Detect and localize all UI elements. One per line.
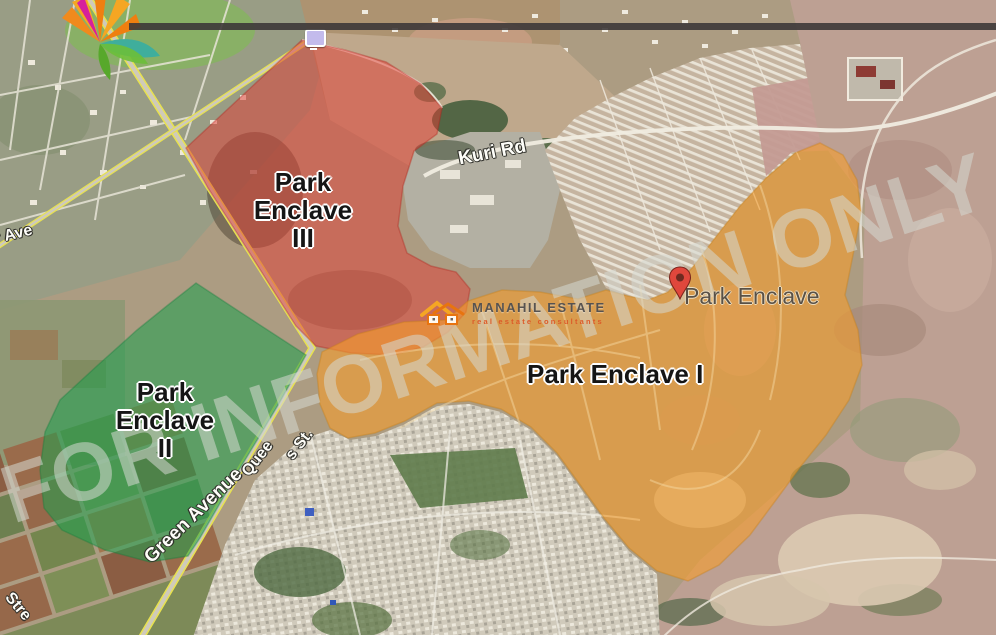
school-poi-icon[interactable]	[305, 29, 326, 47]
manahil-houses-icon	[420, 300, 466, 328]
flower-logo	[42, 0, 162, 91]
map-canvas[interactable]: FOR INFORMATION ONLY Park Enclave III Pa…	[0, 0, 996, 635]
region-label-line: III	[238, 224, 368, 252]
region-label-line: Enclave	[238, 196, 368, 224]
region-label-park-enclave-1: Park Enclave I	[527, 360, 703, 388]
region-label-line: Enclave	[100, 406, 230, 434]
manahil-logo-tagline: real estate consultants	[472, 317, 606, 326]
region-label-line: Park	[238, 168, 368, 196]
region-label-park-enclave-2: Park Enclave II	[100, 378, 230, 462]
manahil-estate-logo: MANAHIL ESTATE real estate consultants	[420, 300, 606, 328]
top-divider-bar	[129, 23, 996, 30]
map-pin-icon	[668, 266, 692, 300]
pin-label: Park Enclave	[684, 283, 820, 310]
region-label-park-enclave-3: Park Enclave III	[238, 168, 368, 252]
region-label-line: II	[100, 434, 230, 462]
map-pin[interactable]	[668, 266, 692, 305]
flower-logo-icon	[42, 0, 162, 86]
manahil-logo-name: MANAHIL ESTATE	[472, 300, 606, 315]
region-label-line: Park	[100, 378, 230, 406]
